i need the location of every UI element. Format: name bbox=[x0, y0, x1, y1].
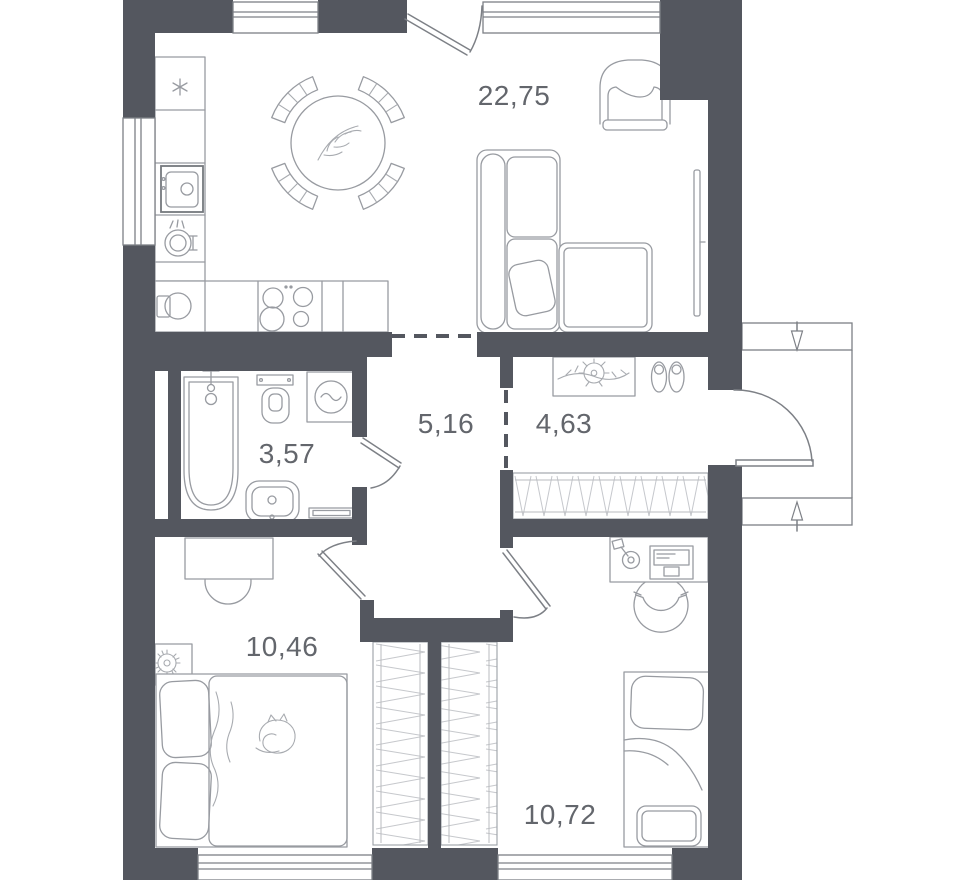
sofa bbox=[477, 150, 652, 333]
computer-icon bbox=[650, 546, 693, 579]
kitchen-area bbox=[155, 57, 404, 332]
wardrobe-left bbox=[373, 642, 428, 845]
bedroom-left-door bbox=[318, 541, 365, 599]
toilet bbox=[257, 375, 293, 423]
hall-closet bbox=[513, 473, 708, 519]
room-label-bathroom: 3,57 bbox=[259, 438, 316, 469]
armchair bbox=[600, 60, 670, 130]
entrance-door bbox=[734, 390, 813, 466]
single-bed bbox=[624, 672, 710, 847]
console-table bbox=[553, 357, 635, 396]
balcony-door bbox=[405, 6, 482, 55]
dresser-desk bbox=[185, 538, 273, 579]
washing-machine bbox=[307, 372, 355, 422]
office-chair bbox=[634, 577, 688, 632]
ottoman bbox=[559, 243, 652, 332]
bedroom-right-area bbox=[610, 537, 710, 847]
bedroom-left-area bbox=[154, 538, 347, 847]
room-label-bedroom-right: 10,72 bbox=[524, 799, 597, 830]
tv bbox=[694, 170, 705, 316]
bathroom-sink bbox=[246, 481, 299, 522]
dining-table bbox=[272, 77, 405, 210]
room-label-hallway: 4,63 bbox=[536, 408, 593, 439]
shoes-icon bbox=[652, 362, 685, 392]
bathroom-door bbox=[361, 438, 401, 488]
wardrobe-right bbox=[441, 642, 497, 845]
floor-plan: 22,75 5,16 4,63 3,57 10,46 10,72 bbox=[0, 0, 973, 880]
stair-landing bbox=[742, 322, 852, 531]
window-kitchen-left bbox=[123, 118, 155, 245]
kitchen-sink bbox=[161, 166, 203, 212]
window-bedroom-left bbox=[198, 855, 372, 880]
floor-plan-page: 22,75 5,16 4,63 3,57 10,46 10,72 bbox=[0, 0, 973, 880]
double-bed bbox=[156, 674, 347, 847]
room-label-bedroom-left: 10,46 bbox=[246, 631, 319, 662]
bathtub bbox=[184, 364, 238, 510]
window-top-living bbox=[483, 2, 660, 33]
bath-mat bbox=[309, 508, 354, 518]
window-bedroom-right bbox=[498, 855, 672, 880]
room-label-corridor: 5,16 bbox=[418, 408, 475, 439]
bedroom-right-door bbox=[503, 550, 550, 618]
room-label-kitchen-living: 22,75 bbox=[478, 80, 551, 111]
window-top-kitchen bbox=[233, 2, 318, 33]
